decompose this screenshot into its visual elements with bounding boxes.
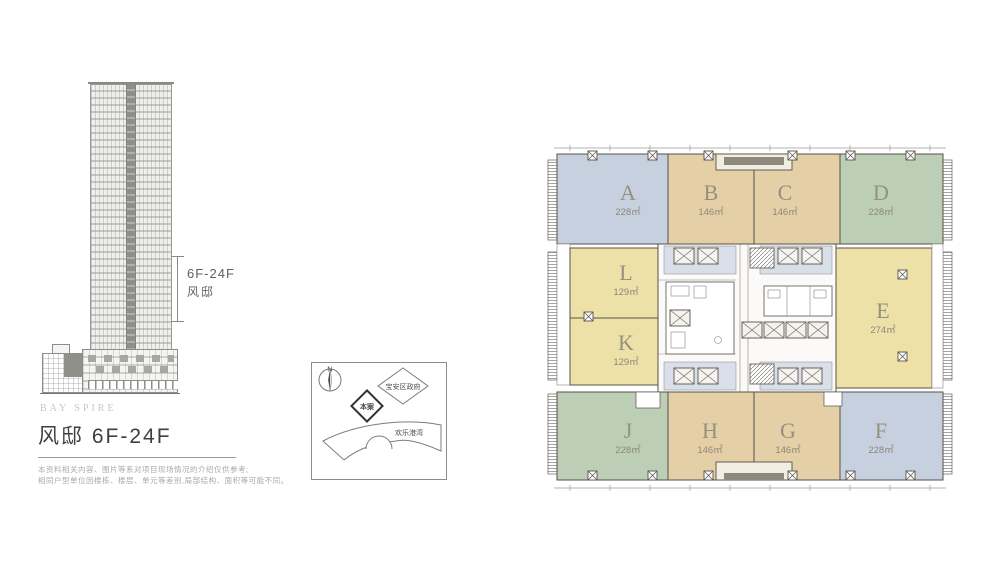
north-compass-icon: N [319, 365, 341, 392]
unit-J-letter: J [624, 418, 633, 443]
unit-C-area: 146㎡ [772, 207, 798, 218]
restroom-block [666, 282, 734, 354]
unit-B-letter: B [704, 180, 719, 205]
podium-window-cells [96, 366, 174, 373]
government-parcel: 宝安区政府 [378, 368, 428, 404]
site-location-map: N 宝安区政府 本案 欢乐港湾 [311, 362, 447, 480]
east-corridor-strip [932, 244, 943, 388]
stair-bottom [750, 364, 774, 384]
floor-plan-canvas: A 228㎡ B 146㎡ C 146㎡ D 228㎡ L 129㎡ K 129… [540, 140, 960, 492]
bay-label: 欢乐港湾 [395, 428, 423, 437]
unit-H-area: 146㎡ [697, 445, 723, 456]
unit-B-area: 146㎡ [698, 207, 724, 218]
unit-L-area: 129㎡ [613, 287, 639, 298]
unit-K-area: 129㎡ [613, 357, 639, 368]
unit-F-area: 228㎡ [868, 445, 894, 456]
unit-D-area: 228㎡ [868, 207, 894, 218]
unit-G-area: 146㎡ [775, 445, 801, 456]
north-label: N [327, 365, 332, 374]
bracket-tick [171, 321, 184, 322]
floor-plan: A 228㎡ B 146㎡ C 146㎡ D 228㎡ L 129㎡ K 129… [540, 140, 960, 492]
page-title: 风邸 6F-24F [38, 420, 172, 450]
equipment-notch-top [716, 154, 792, 170]
unit-J-area: 228㎡ [615, 445, 641, 456]
unit-L [570, 248, 658, 318]
west-corridor-strip [557, 244, 570, 385]
podium-window-cells [88, 355, 174, 362]
disclaimer-line-1: 本资料相关内容、图片等系对项目现场情况的介绍仅供参考; [38, 464, 289, 475]
brand-wordmark: BAY SPIRE [40, 403, 117, 414]
disclaimer-text: 本资料相关内容、图片等系对项目现场情况的介绍仅供参考; 相同户型单位因楼栋、楼层… [38, 464, 289, 486]
unit-C-letter: C [778, 180, 793, 205]
title-divider [38, 457, 236, 458]
unit-H-letter: H [702, 418, 718, 443]
ground-line [40, 393, 180, 394]
disclaimer-line-2: 相同户型单位因楼栋、楼层、单元等差别,局部结构、面积等可能不同。 [38, 475, 289, 486]
site-marker: 本案 [351, 390, 382, 421]
equipment-notch-bottom [716, 462, 792, 480]
unit-E-letter: E [876, 298, 889, 323]
podium-dark-block [64, 353, 82, 377]
range-sublabel: 风邸 [187, 283, 215, 300]
bracket-tick [171, 256, 184, 257]
bracket-line [177, 256, 178, 322]
unit-G-letter: G [780, 418, 796, 443]
tower-core-stripe [126, 84, 136, 392]
unit-F [840, 392, 943, 480]
service-box [824, 392, 842, 406]
government-label: 宝安区政府 [386, 382, 421, 391]
site-label: 本案 [359, 402, 375, 411]
unit-A [557, 154, 668, 244]
unit-K-letter: K [618, 330, 634, 355]
service-core [658, 244, 836, 392]
podium-arcade [88, 380, 178, 389]
unit-D-letter: D [873, 180, 889, 205]
utility-block [764, 286, 832, 316]
unit-F-letter: F [875, 418, 887, 443]
site-map-canvas: N 宝安区政府 本案 欢乐港湾 [312, 363, 446, 479]
brochure-page: { "left_panel": { "range_label": "6F-24F… [0, 0, 1000, 566]
unit-K [570, 318, 658, 385]
unit-L-letter: L [619, 260, 632, 285]
unit-E-area: 274㎡ [870, 325, 896, 336]
stair-top [750, 248, 774, 268]
range-label: 6F-24F [187, 266, 235, 281]
unit-A-letter: A [620, 180, 636, 205]
service-box [636, 392, 660, 408]
unit-A-area: 228㎡ [615, 207, 641, 218]
bay-band: 欢乐港湾 [323, 422, 441, 460]
unit-D [840, 154, 943, 244]
